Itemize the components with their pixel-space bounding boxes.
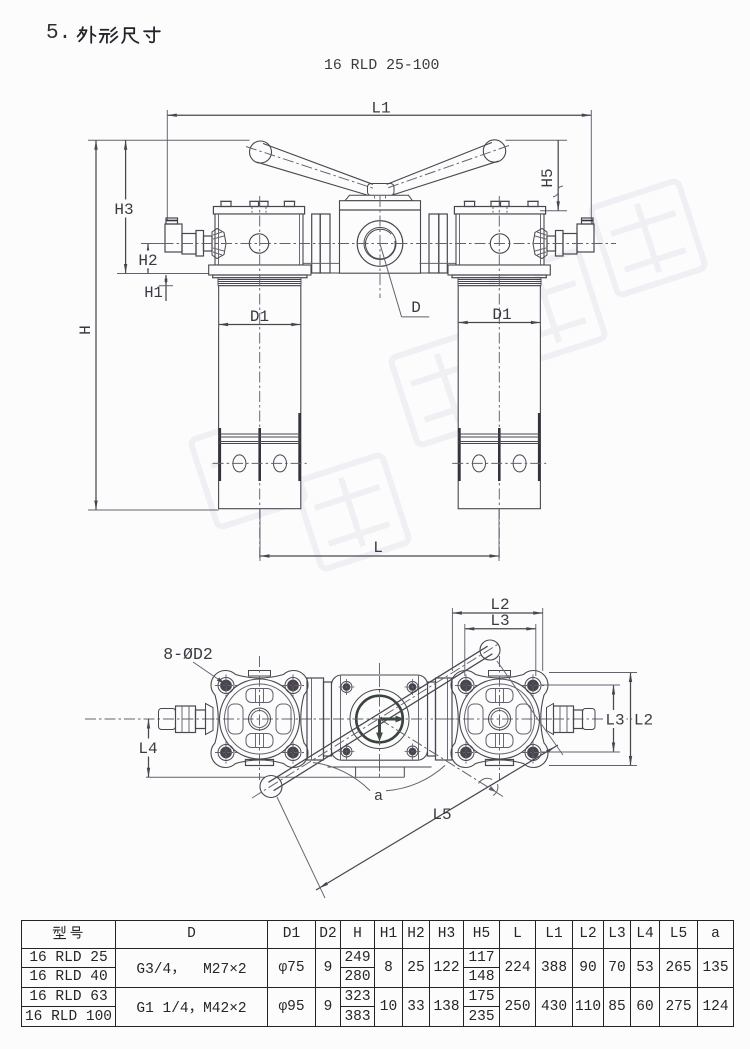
svg-text:L: L (373, 539, 383, 557)
svg-text:L1: L1 (371, 100, 390, 118)
svg-text:L5: L5 (432, 806, 451, 824)
svg-text:a: a (374, 788, 383, 805)
svg-text:H1: H1 (144, 284, 163, 302)
svg-text:D1: D1 (250, 308, 269, 326)
svg-text:H3: H3 (114, 201, 133, 219)
svg-text:D: D (411, 299, 421, 317)
svg-text:L3: L3 (605, 712, 624, 730)
svg-text:H: H (77, 325, 95, 335)
svg-text:L3: L3 (490, 612, 509, 630)
svg-text:L4: L4 (138, 740, 157, 758)
svg-text:D1: D1 (492, 306, 511, 324)
svg-text:8-ØD2: 8-ØD2 (163, 645, 213, 664)
svg-text:H2: H2 (138, 252, 157, 270)
svg-text:L2: L2 (634, 712, 653, 730)
svg-text:H5: H5 (539, 168, 557, 187)
